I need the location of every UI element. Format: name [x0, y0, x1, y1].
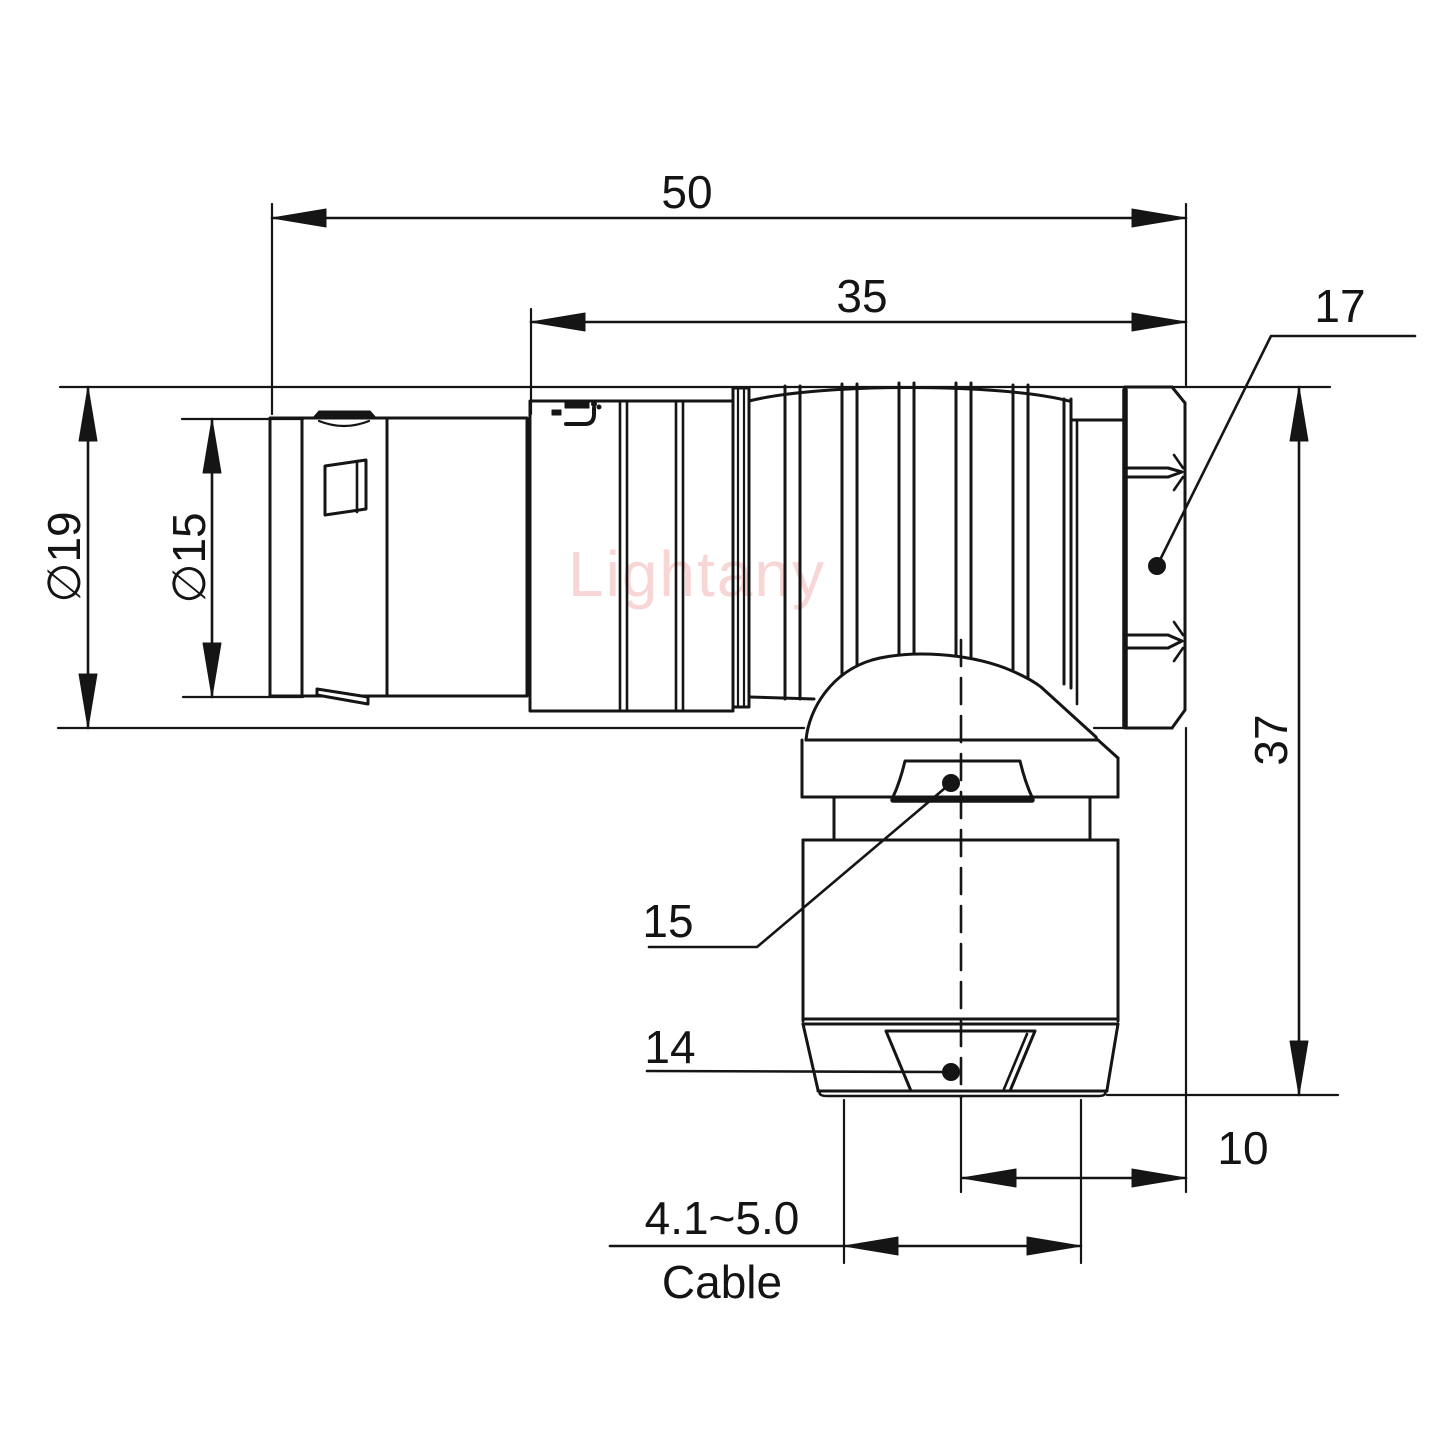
- bottom-latch: [317, 689, 368, 704]
- connector-dimension-drawing: Lightany: [0, 0, 1440, 1440]
- dimension-front-diameter-15: ∅15: [163, 419, 221, 697]
- dim-19-label: ∅19: [38, 511, 90, 602]
- mid-shell: [387, 418, 527, 696]
- dimension-offset-10: 10: [962, 1122, 1269, 1187]
- dimension-height-37: 37: [1245, 387, 1308, 1095]
- lightany-logo-icon: [552, 402, 601, 425]
- front-nose: [270, 418, 302, 696]
- dimension-overall-length-50: 50: [272, 166, 1186, 414]
- dimension-cable-range: 4.1~5.0 Cable: [610, 1100, 1081, 1308]
- dim-15d-label: ∅15: [163, 512, 215, 603]
- cable-caption-label: Cable: [662, 1256, 782, 1308]
- dim-37-label: 37: [1245, 714, 1297, 765]
- leader-dot-14: [943, 1064, 960, 1081]
- leader-dot-15: [943, 775, 960, 792]
- leader-dot-17: [1149, 558, 1166, 575]
- dim-10-label: 10: [1217, 1122, 1268, 1174]
- front-barrel: [302, 411, 387, 704]
- keying-window: [325, 460, 366, 515]
- dim-14-label: 14: [644, 1021, 695, 1073]
- elbow-dome: [806, 654, 1097, 740]
- dim-17-label: 17: [1314, 280, 1365, 332]
- dimension-outer-diameter-19: ∅19: [38, 387, 97, 728]
- collar-flat: [893, 761, 1032, 797]
- dim-35-label: 35: [836, 270, 887, 322]
- cable-range-label: 4.1~5.0: [645, 1192, 800, 1244]
- watermark-text: Lightany: [568, 538, 826, 610]
- latch-bump: [312, 411, 377, 419]
- callout-nut-17: 17: [1149, 280, 1416, 575]
- dim-50-label: 50: [661, 166, 712, 218]
- dim-15-label: 15: [642, 895, 693, 947]
- technical-drawing-page: Lightany: [0, 0, 1440, 1440]
- rear-neck: [1071, 420, 1125, 704]
